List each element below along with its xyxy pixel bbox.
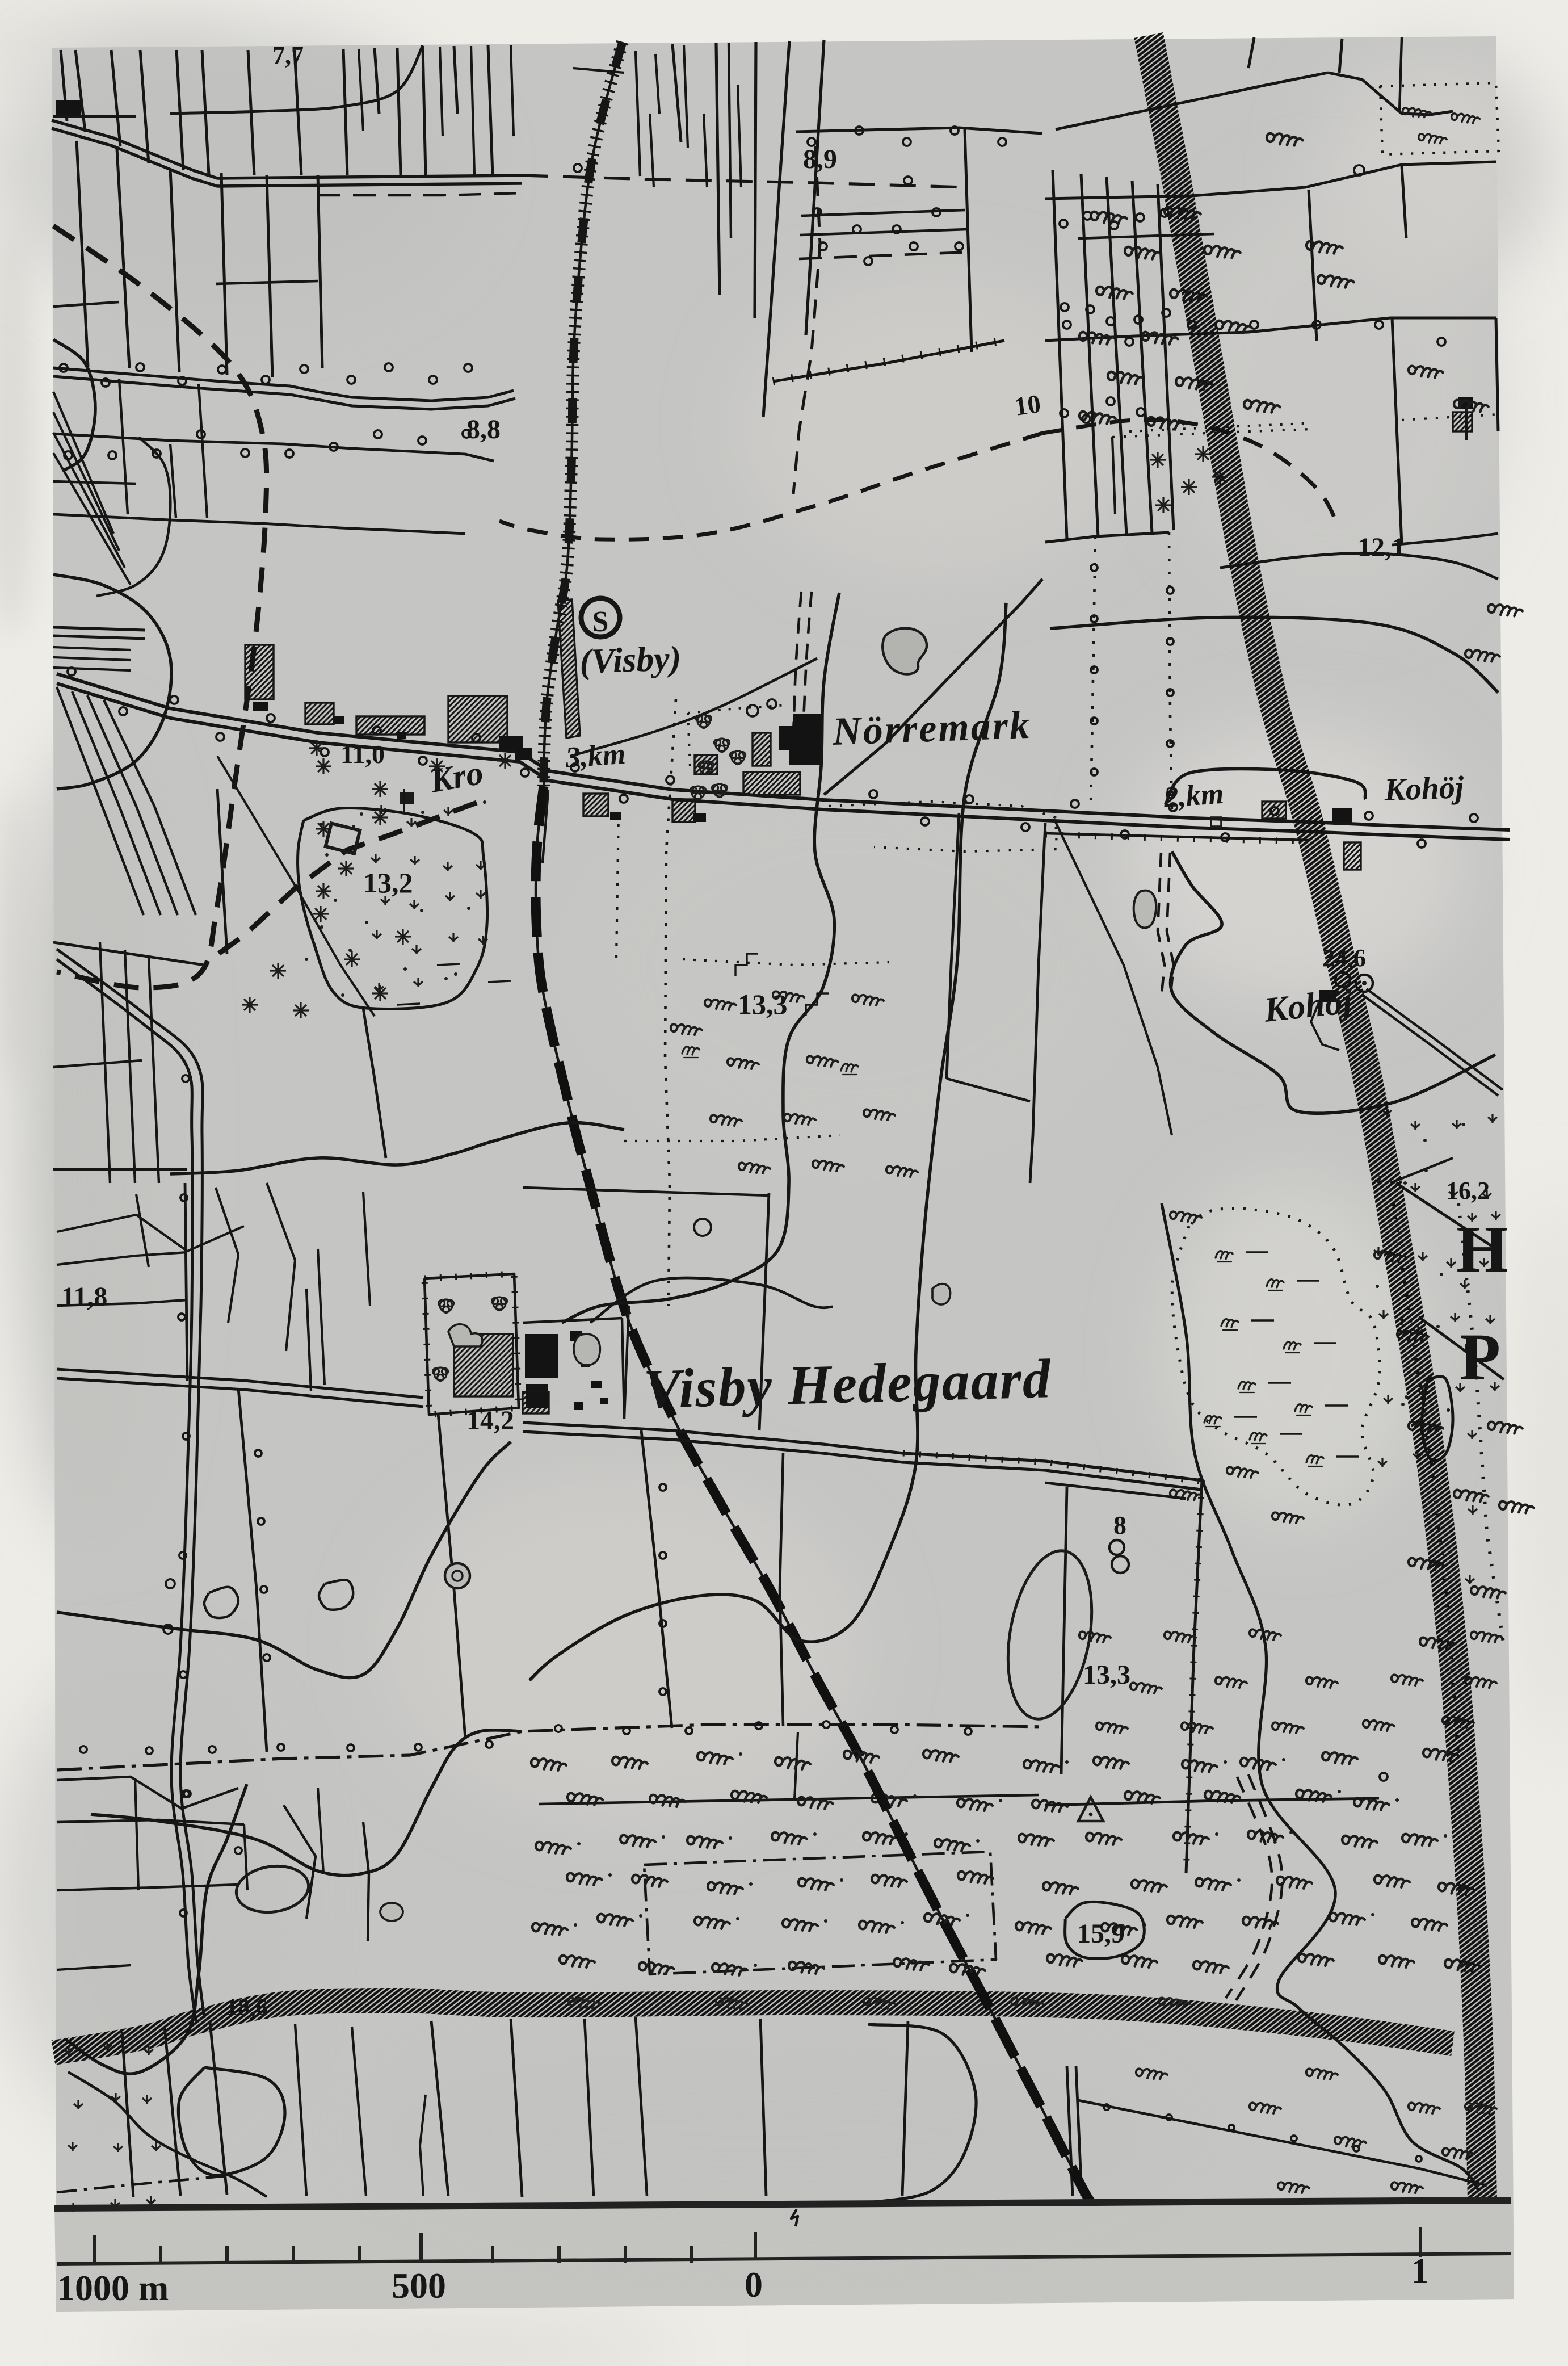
svg-text:11,8: 11,8 [61,1282,107,1312]
svg-text:8,8: 8,8 [466,414,501,444]
svg-text:1000 m: 1000 m [57,2268,169,2308]
svg-text:11,0: 11,0 [340,740,385,769]
svg-text:Nörremark: Nörremark [831,703,1032,754]
svg-text:2,km: 2,km [1162,778,1225,814]
svg-text:3,km: 3,km [564,738,627,774]
svg-text:P: P [1460,1320,1500,1394]
svg-text:8,9: 8,9 [803,144,837,174]
svg-text:(Visby): (Visby) [579,639,682,681]
svg-text:15,9: 15,9 [1077,1919,1125,1949]
svg-text:8: 8 [1113,1511,1126,1539]
svg-text:500: 500 [392,2266,446,2306]
svg-text:18,6: 18,6 [226,1995,268,2021]
svg-text:10: 10 [1012,389,1042,421]
svg-text:13,2: 13,2 [363,867,413,899]
svg-text:Visby Hedegaard: Visby Hedegaard [643,1348,1052,1420]
svg-text:12,1: 12,1 [1357,532,1405,563]
svg-text:14,2: 14,2 [466,1406,514,1436]
svg-text:S: S [592,606,609,638]
svg-text:H: H [1456,1212,1508,1286]
svg-text:13,3: 13,3 [1083,1660,1130,1690]
svg-text:13,3: 13,3 [738,988,788,1020]
svg-text:7,7: 7,7 [272,41,304,69]
svg-text:1: 1 [1411,2251,1429,2291]
svg-text:24,6: 24,6 [1322,944,1366,972]
svg-text:16,2: 16,2 [1446,1177,1490,1205]
svg-text:0: 0 [745,2264,763,2305]
svg-text:Kohöj: Kohöj [1383,770,1465,808]
